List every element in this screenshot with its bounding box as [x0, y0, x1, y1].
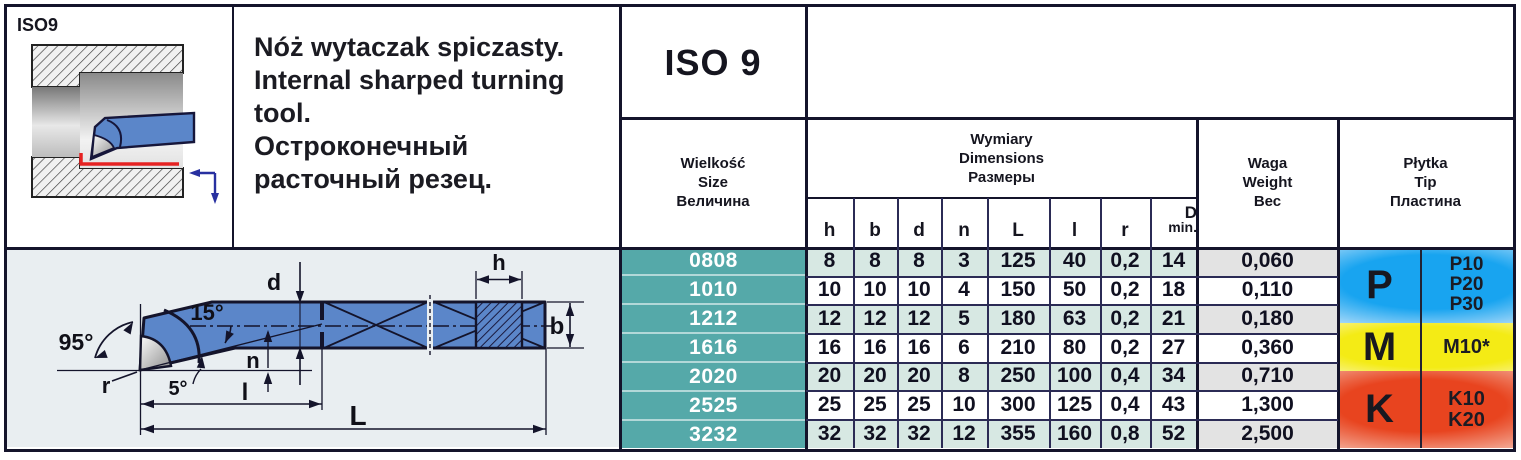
- grade-letter-k: K: [1339, 371, 1420, 448]
- dimension-drawing: 95° 15° 5° r n d l L h b: [7, 250, 620, 447]
- grid-line: [1150, 198, 1152, 448]
- cell-L: 210: [987, 333, 1049, 362]
- grid-line: [1049, 198, 1051, 448]
- grade-list-k: K10 K20: [1420, 371, 1513, 448]
- cell-l: 125: [1049, 391, 1100, 420]
- tip-header-pl: Płytka: [1403, 154, 1447, 173]
- row-size-label: 1616: [621, 332, 806, 361]
- col-header-d: d: [897, 198, 941, 247]
- cell-b: 32: [853, 419, 897, 448]
- grid-line: [806, 419, 1338, 421]
- tool-in-bore-illustration: ISO9: [7, 7, 232, 247]
- description-pl: Nóż wytaczak spiczasty.: [254, 31, 610, 64]
- cell-L: 250: [987, 362, 1049, 391]
- table-row: 12 12 12 5 180 63 0,2 21: [806, 304, 1197, 333]
- col-header-dmin: D min.: [1150, 198, 1197, 247]
- label-5deg: 5°: [168, 378, 187, 400]
- dims-header-pl: Wymiary: [970, 130, 1032, 149]
- cell-r: 0,4: [1100, 391, 1150, 420]
- catalog-page: ISO9 Nóż wytaczak spiczasty. Internal sh…: [0, 0, 1521, 460]
- cell-L: 125: [987, 247, 1049, 276]
- cell-l: 80: [1049, 333, 1100, 362]
- grid-line: [1100, 198, 1102, 448]
- grade-list-m: M10*: [1420, 323, 1513, 371]
- feed-arrowhead-down: [211, 193, 219, 204]
- cell-l: 100: [1049, 362, 1100, 391]
- cell-l: 160: [1049, 419, 1100, 448]
- grid-line: [619, 4, 622, 450]
- tool-thumbnail-cell: ISO9: [7, 7, 232, 247]
- grid-line: [806, 276, 1338, 278]
- row-size-label: 1212: [621, 303, 806, 332]
- cell-l: 40: [1049, 247, 1100, 276]
- cell-dmin: 43: [1150, 391, 1197, 420]
- weight-header-en: Weight: [1243, 173, 1293, 192]
- cell-n: 4: [941, 276, 987, 305]
- grid-line: [853, 198, 855, 448]
- cell-L: 150: [987, 276, 1049, 305]
- grid-line: [806, 390, 1338, 392]
- cell-d: 10: [897, 276, 941, 305]
- row-size-label: 1010: [621, 274, 806, 303]
- iso-code: ISO 9: [664, 42, 761, 84]
- grid-line: [806, 304, 1338, 306]
- row-size-label: 2525: [621, 390, 806, 419]
- cell-dmin: 52: [1150, 419, 1197, 448]
- grid-line: [806, 197, 1197, 199]
- label-d: d: [267, 269, 281, 295]
- grade-band-k: K K10 K20: [1339, 371, 1513, 448]
- cell-d: 32: [897, 419, 941, 448]
- row-size-label: 0808: [621, 247, 806, 274]
- cell-weight: 2,500: [1197, 419, 1338, 448]
- iso-code-cell: ISO 9: [620, 7, 806, 118]
- cell-h: 12: [806, 304, 853, 333]
- grade-band-m: M M10*: [1339, 323, 1513, 371]
- col-header-L: L: [987, 198, 1049, 247]
- grid-line: [806, 333, 1338, 335]
- cell-h: 10: [806, 276, 853, 305]
- grade-band-p: P P10 P20 P30: [1339, 247, 1513, 323]
- grade-p10: P10: [1450, 255, 1484, 275]
- cell-b: 8: [853, 247, 897, 276]
- cell-dmin: 18: [1150, 276, 1197, 305]
- cell-weight: 0,110: [1197, 276, 1338, 305]
- grid-line: [806, 362, 1338, 364]
- section-hatch: [476, 302, 522, 348]
- cell-weight: 0,180: [1197, 304, 1338, 333]
- cell-d: 8: [897, 247, 941, 276]
- tip-grade-panel: P P10 P20 P30 M M10* K K10 K20: [1339, 247, 1513, 448]
- cell-dmin: 21: [1150, 304, 1197, 333]
- size-header-en: Size: [698, 173, 728, 192]
- grid-line: [897, 198, 899, 448]
- label-h: h: [492, 250, 505, 275]
- cell-n: 6: [941, 333, 987, 362]
- col-header-r: r: [1100, 198, 1150, 247]
- grade-panel-divider: [1420, 247, 1422, 448]
- dims-header-en: Dimensions: [959, 149, 1044, 168]
- grid-line: [232, 4, 234, 250]
- grid-line: [1337, 118, 1340, 449]
- cell-weight: 0,360: [1197, 333, 1338, 362]
- table-row: 25 25 25 10 300 125 0,4 43: [806, 391, 1197, 420]
- cell-weight: 0,060: [1197, 247, 1338, 276]
- grade-k10: K10: [1448, 389, 1485, 410]
- grade-letter-p: P: [1339, 247, 1420, 323]
- cell-r: 0,8: [1100, 419, 1150, 448]
- cell-dmin: 14: [1150, 247, 1197, 276]
- cell-b: 10: [853, 276, 897, 305]
- col-header-l: l: [1049, 198, 1100, 247]
- thumb-iso-label: ISO9: [17, 15, 58, 35]
- cell-b: 16: [853, 333, 897, 362]
- grade-m10: M10*: [1443, 336, 1490, 359]
- size-header-pl: Wielkość: [681, 154, 746, 173]
- cell-n: 5: [941, 304, 987, 333]
- feed-arrowhead-left: [189, 169, 200, 177]
- cell-n: 3: [941, 247, 987, 276]
- cell-r: 0,2: [1100, 333, 1150, 362]
- cell-n: 8: [941, 362, 987, 391]
- cell-r: 0,4: [1100, 362, 1150, 391]
- col-header-b: b: [853, 198, 897, 247]
- cell-l: 50: [1049, 276, 1100, 305]
- description-en: Internal sharped turning tool.: [254, 64, 610, 130]
- label-15deg: 15°: [190, 300, 223, 325]
- weight-header: Waga Weight Вес: [1197, 118, 1338, 247]
- cell-d: 20: [897, 362, 941, 391]
- bore-small: [32, 87, 80, 157]
- description-cell: Nóż wytaczak spiczasty. Internal sharped…: [234, 7, 620, 247]
- label-l: l: [242, 379, 249, 406]
- cell-r: 0,2: [1100, 304, 1150, 333]
- weight-header-ru: Вес: [1254, 192, 1281, 211]
- label-n: n: [246, 348, 259, 373]
- col-header-h: h: [806, 198, 853, 247]
- tip-header-ru: Пластина: [1390, 192, 1461, 211]
- cell-r: 0,2: [1100, 276, 1150, 305]
- cell-dmin: 34: [1150, 362, 1197, 391]
- table-row: 16 16 16 6 210 80 0,2 27: [806, 333, 1197, 362]
- size-header: Wielkość Size Величина: [620, 118, 806, 247]
- grid-line: [941, 198, 943, 448]
- cell-h: 8: [806, 247, 853, 276]
- dimensions-header: Wymiary Dimensions Размеры: [806, 118, 1197, 198]
- cell-weight: 0,710: [1197, 362, 1338, 391]
- label-L: L: [349, 400, 366, 431]
- grid-line: [1196, 118, 1199, 449]
- cell-b: 20: [853, 362, 897, 391]
- row-size-label: 2020: [621, 361, 806, 390]
- cell-r: 0,2: [1100, 247, 1150, 276]
- label-95deg: 95°: [59, 329, 94, 355]
- label-b: b: [550, 313, 565, 340]
- grade-p30: P30: [1450, 295, 1484, 315]
- label-r: r: [102, 373, 111, 398]
- table-row: 32 32 32 12 355 160 0,8 52: [806, 419, 1197, 448]
- cell-b: 12: [853, 304, 897, 333]
- tip-header-en: Tip: [1414, 173, 1436, 192]
- cell-weight: 1,300: [1197, 391, 1338, 420]
- dims-header-ru: Размеры: [968, 168, 1035, 187]
- grid-line: [805, 4, 808, 449]
- cell-h: 25: [806, 391, 853, 420]
- cell-n: 10: [941, 391, 987, 420]
- cell-h: 16: [806, 333, 853, 362]
- table-row: 10 10 10 4 150 50 0,2 18: [806, 276, 1197, 305]
- cell-b: 25: [853, 391, 897, 420]
- cell-d: 16: [897, 333, 941, 362]
- dimension-drawing-cell: 95° 15° 5° r n d l L h b: [7, 250, 620, 447]
- description-ru: Остроконечный расточный резец.: [254, 130, 610, 196]
- grid-line: [4, 247, 1513, 250]
- cell-n: 12: [941, 419, 987, 448]
- grid-line: [620, 117, 1513, 120]
- grade-k20: K20: [1448, 410, 1485, 431]
- table-row: 20 20 20 8 250 100 0,4 34: [806, 362, 1197, 391]
- dimension-subheader-row: h b d n L l r D min.: [806, 198, 1197, 247]
- grade-letter-m: M: [1339, 323, 1420, 371]
- cell-L: 355: [987, 419, 1049, 448]
- col-header-dmin-bottom: min.: [1168, 220, 1197, 235]
- cell-L: 300: [987, 391, 1049, 420]
- grid-line: [987, 198, 989, 448]
- cell-h: 32: [806, 419, 853, 448]
- cell-d: 12: [897, 304, 941, 333]
- table-row: 8 8 8 3 125 40 0,2 14: [806, 247, 1197, 276]
- tip-header: Płytka Tip Пластина: [1338, 118, 1513, 247]
- size-column: 0808 1010 1212 1616 2020 2525 3232: [621, 247, 806, 448]
- size-header-ru: Величина: [676, 192, 749, 211]
- cell-d: 25: [897, 391, 941, 420]
- grade-list-p: P10 P20 P30: [1420, 247, 1513, 323]
- row-size-label: 3232: [621, 419, 806, 448]
- cell-h: 20: [806, 362, 853, 391]
- col-header-n: n: [941, 198, 987, 247]
- cell-dmin: 27: [1150, 333, 1197, 362]
- cell-l: 63: [1049, 304, 1100, 333]
- cell-L: 180: [987, 304, 1049, 333]
- grade-p20: P20: [1450, 275, 1484, 295]
- weight-header-pl: Waga: [1248, 154, 1287, 173]
